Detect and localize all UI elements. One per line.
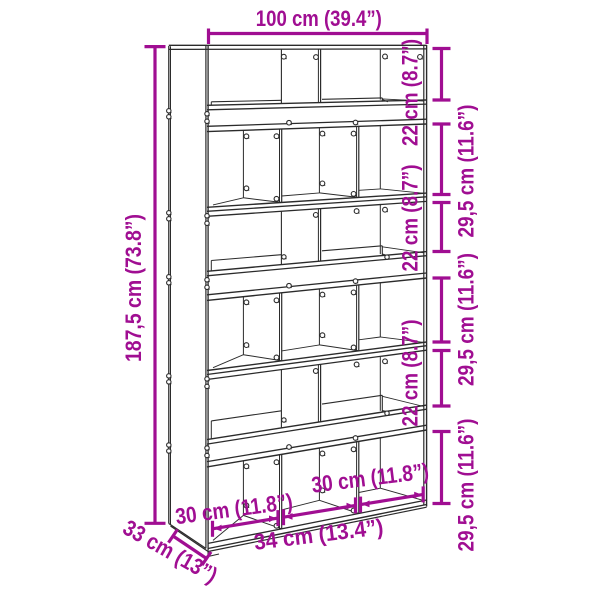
svg-text:100 cm (39.4”): 100 cm (39.4”) (256, 6, 382, 31)
svg-text:22 cm (8.7”): 22 cm (8.7”) (398, 320, 423, 427)
svg-text:187,5 cm (73.8”): 187,5 cm (73.8”) (121, 214, 146, 362)
svg-text:29,5 cm (11.6”): 29,5 cm (11.6”) (454, 105, 479, 238)
svg-text:29,5 cm (11.6”): 29,5 cm (11.6”) (454, 419, 479, 552)
svg-text:29,5 cm (11.6”): 29,5 cm (11.6”) (454, 253, 479, 386)
svg-text:22 cm (8.7”): 22 cm (8.7”) (398, 39, 423, 146)
svg-text:22 cm (8.7”): 22 cm (8.7”) (398, 165, 423, 272)
